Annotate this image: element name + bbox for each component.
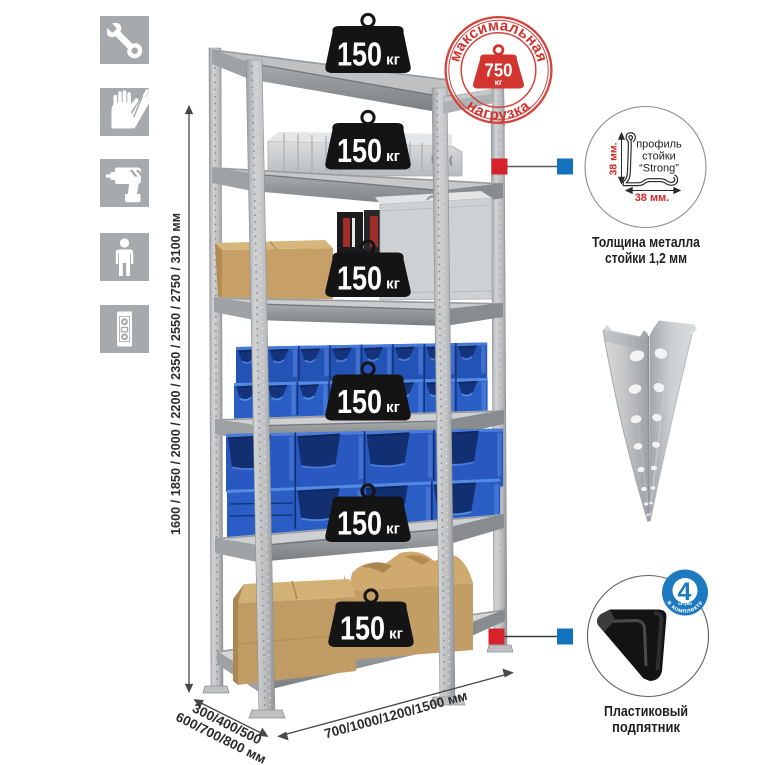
svg-text:подпятник: подпятник bbox=[612, 720, 681, 736]
svg-text:Толщина металла: Толщина металла bbox=[592, 235, 701, 251]
svg-text:кг: кг bbox=[386, 521, 400, 538]
svg-text:кг: кг bbox=[495, 77, 503, 87]
svg-text:стойки: стойки bbox=[642, 151, 676, 163]
svg-text:38 мм.: 38 мм. bbox=[608, 142, 620, 175]
svg-text:кг: кг bbox=[389, 626, 403, 643]
svg-text:1600 / 1850 / 2000 / 2200 / 23: 1600 / 1850 / 2000 / 2200 / 2350 / 2550 … bbox=[168, 213, 183, 535]
svg-text:кг: кг bbox=[386, 399, 400, 416]
svg-text:кг: кг bbox=[386, 148, 400, 165]
svg-text:кг: кг bbox=[386, 276, 400, 293]
svg-text:38 мм.: 38 мм. bbox=[635, 192, 670, 204]
svg-text:Пластиковый: Пластиковый bbox=[604, 704, 688, 720]
svg-text:кг: кг bbox=[386, 52, 400, 69]
svg-text:150: 150 bbox=[340, 610, 385, 647]
svg-text:150: 150 bbox=[337, 132, 382, 169]
svg-text:150: 150 bbox=[337, 36, 382, 73]
svg-text:150: 150 bbox=[337, 260, 382, 297]
svg-text:“Strong”: “Strong” bbox=[639, 163, 679, 175]
svg-text:стойки 1,2 мм: стойки 1,2 мм bbox=[605, 251, 687, 267]
svg-text:штуки: штуки bbox=[678, 601, 692, 606]
svg-text:профиль: профиль bbox=[636, 139, 682, 151]
svg-text:150: 150 bbox=[337, 383, 382, 420]
svg-text:150: 150 bbox=[337, 505, 382, 542]
